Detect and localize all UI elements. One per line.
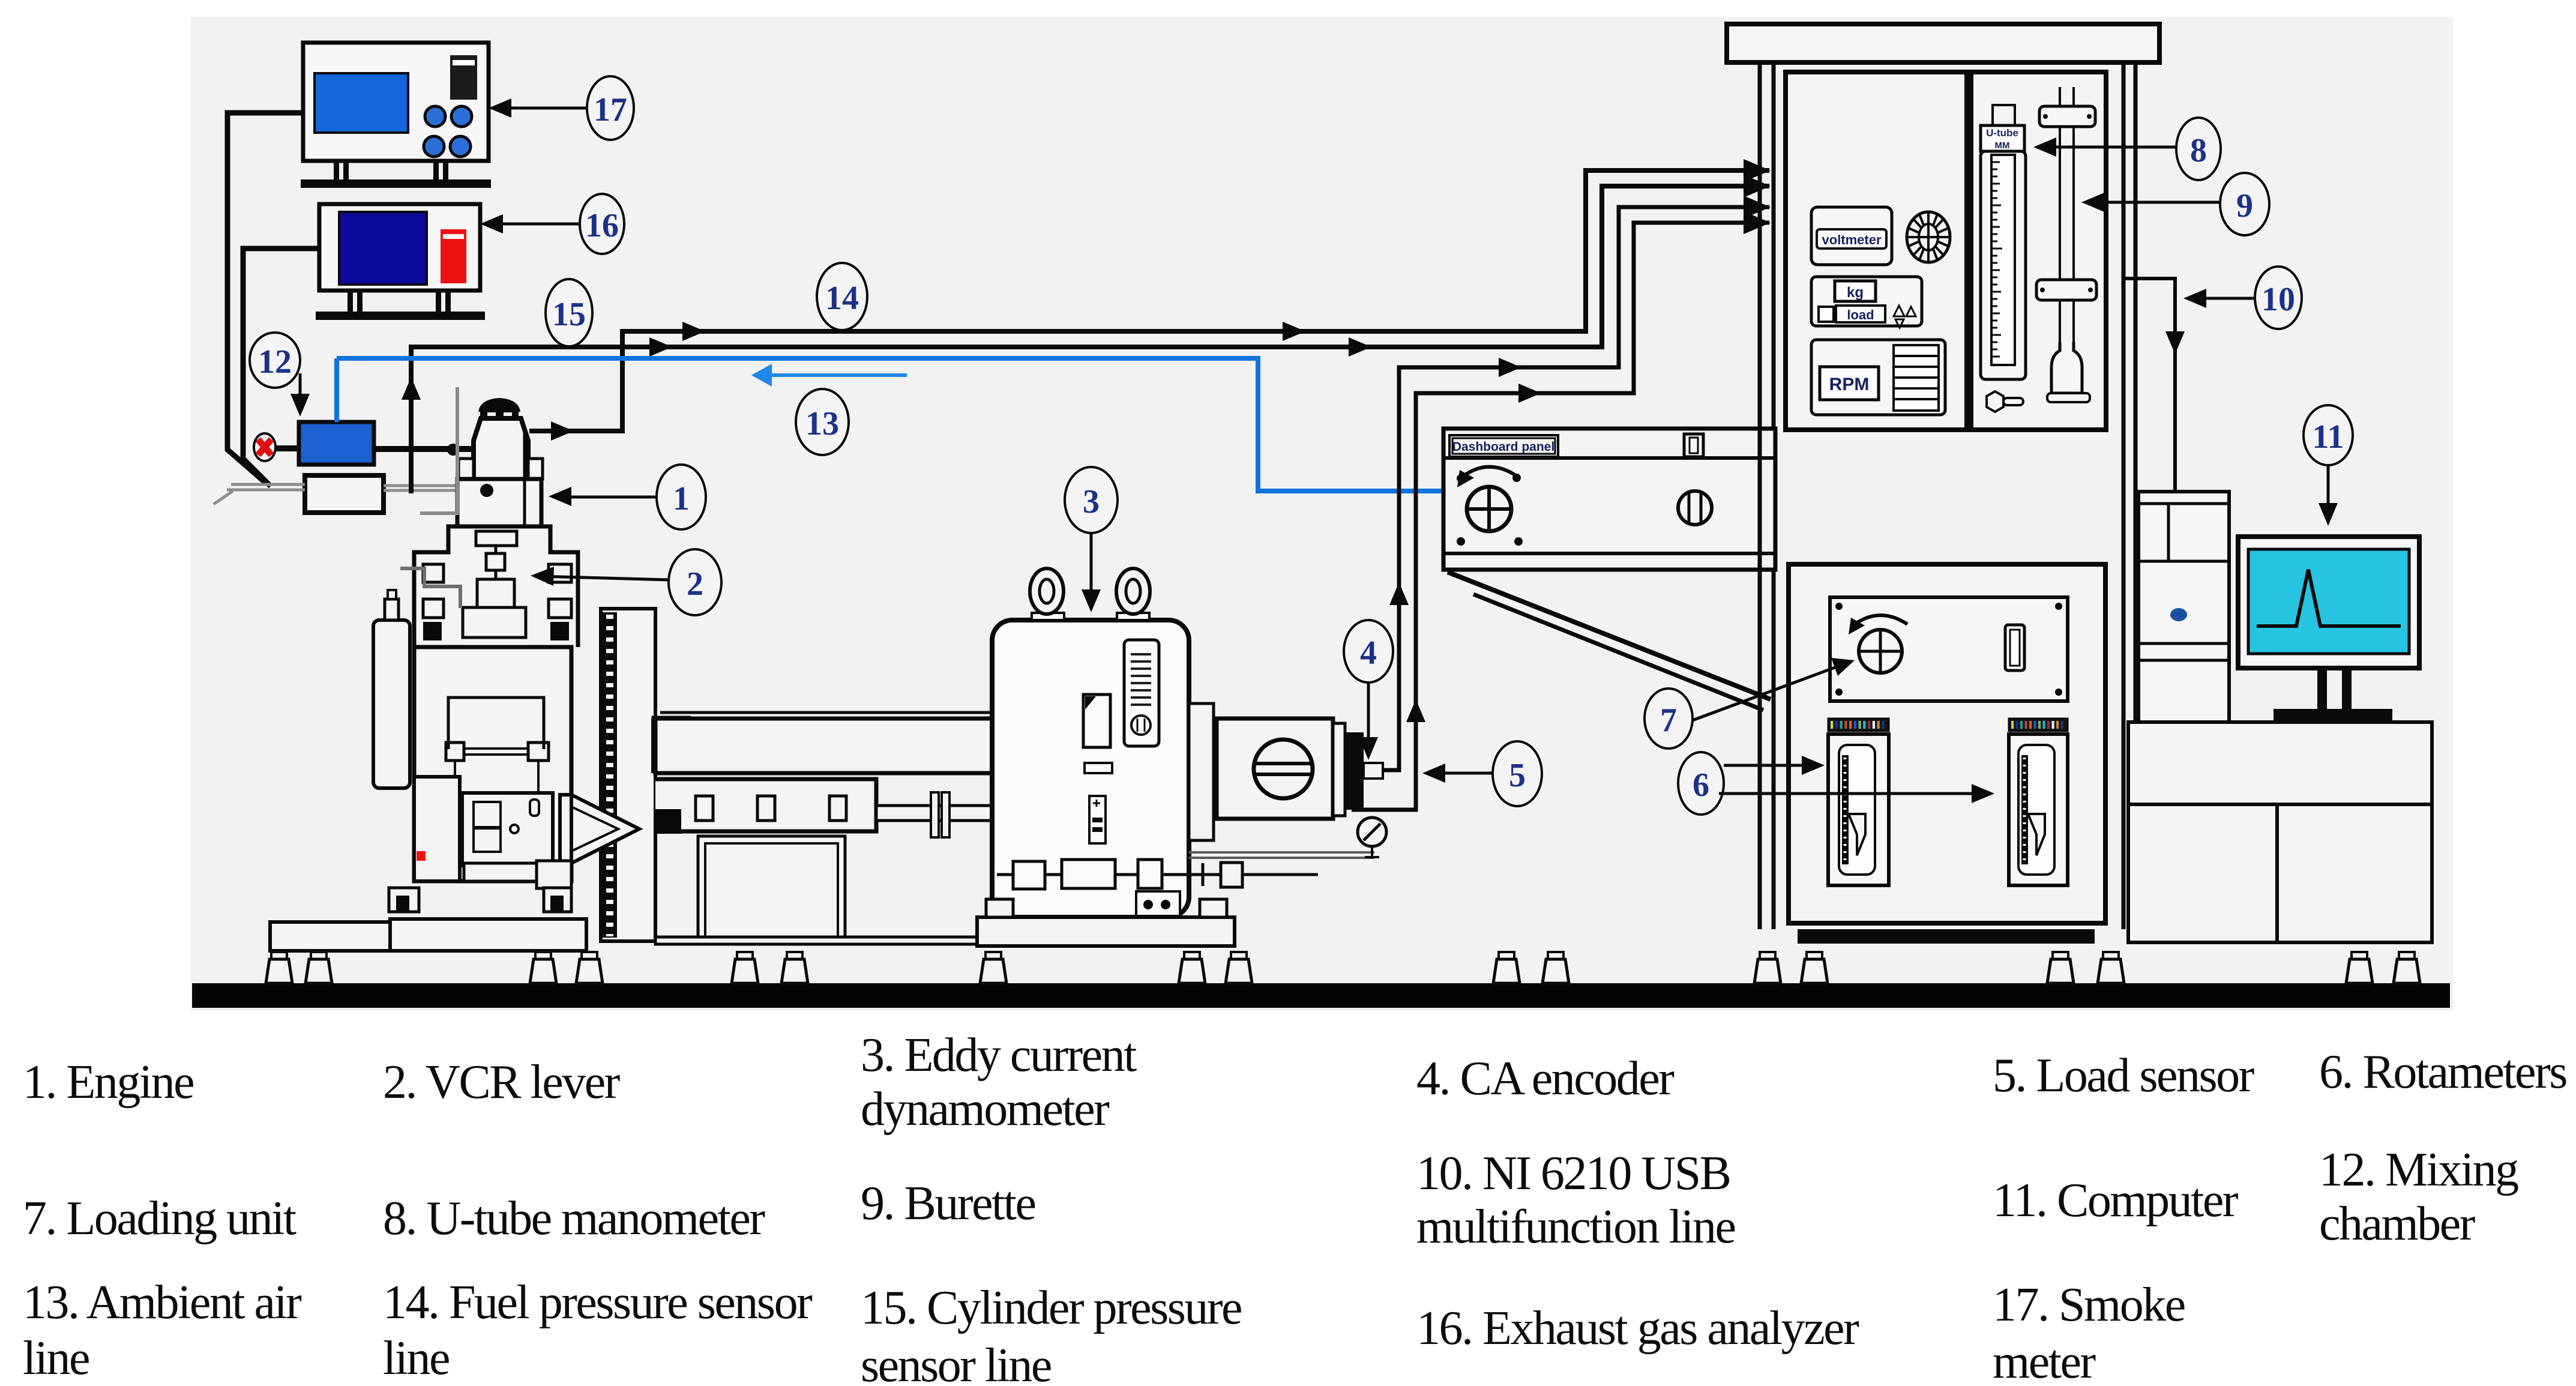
svg-text:11: 11	[2313, 418, 2344, 456]
svg-text:14: 14	[825, 280, 859, 317]
svg-text:8: 8	[2190, 132, 2207, 169]
svg-text:10: 10	[2262, 281, 2295, 318]
svg-text:multifunction line: multifunction line	[1416, 1201, 1735, 1253]
svg-text:11. Computer: 11. Computer	[1993, 1174, 2238, 1227]
svg-text:15. Cylinder pressure: 15. Cylinder pressure	[861, 1282, 1241, 1334]
svg-text:17: 17	[594, 91, 627, 128]
svg-text:chamber: chamber	[2319, 1198, 2475, 1250]
svg-text:2. VCR lever: 2. VCR lever	[383, 1056, 620, 1109]
svg-text:7. Loading unit: 7. Loading unit	[23, 1192, 296, 1245]
svg-text:1: 1	[673, 480, 690, 517]
svg-text:14. Fuel pressure sensor: 14. Fuel pressure sensor	[383, 1276, 812, 1329]
svg-text:MM: MM	[1995, 140, 2010, 151]
svg-text:12. Mixing: 12. Mixing	[2319, 1143, 2518, 1196]
svg-text:4. CA encoder: 4. CA encoder	[1416, 1052, 1674, 1105]
svg-text:line: line	[23, 1332, 89, 1385]
svg-text:10. NI 6210 USB: 10. NI 6210 USB	[1416, 1147, 1730, 1200]
svg-text:kg: kg	[1847, 285, 1864, 301]
svg-text:12: 12	[258, 343, 292, 381]
svg-text:13: 13	[805, 405, 839, 442]
svg-text:RPM: RPM	[1829, 375, 1870, 394]
svg-text:16. Exhaust gas analyzer: 16. Exhaust gas analyzer	[1416, 1302, 1859, 1355]
svg-text:3: 3	[1083, 483, 1100, 520]
svg-text:load: load	[1847, 307, 1874, 322]
svg-text:8. U-tube manometer: 8. U-tube manometer	[383, 1192, 765, 1245]
svg-text:voltmeter: voltmeter	[1822, 232, 1881, 247]
svg-text:5: 5	[1509, 757, 1526, 794]
svg-text:U-tube: U-tube	[1986, 127, 2018, 139]
svg-text:line: line	[383, 1332, 449, 1385]
svg-text:Dashboard panel: Dashboard panel	[1452, 440, 1554, 454]
svg-text:6. Rotameters: 6. Rotameters	[2319, 1046, 2566, 1098]
svg-text:17. Smoke: 17. Smoke	[1993, 1279, 2185, 1331]
svg-text:5. Load sensor: 5. Load sensor	[1993, 1049, 2254, 1102]
svg-text:7: 7	[1660, 702, 1677, 739]
svg-text:dynamometer: dynamometer	[861, 1083, 1109, 1136]
svg-text:6: 6	[1693, 767, 1709, 804]
svg-text:9. Burette: 9. Burette	[861, 1177, 1035, 1230]
svg-text:meter: meter	[1993, 1336, 2095, 1386]
svg-text:16: 16	[585, 207, 619, 244]
svg-text:4: 4	[1360, 634, 1377, 672]
svg-text:13. Ambient air: 13. Ambient air	[23, 1276, 301, 1329]
svg-text:9: 9	[2236, 187, 2253, 224]
svg-text:15: 15	[552, 296, 586, 333]
svg-text:sensor line: sensor line	[861, 1339, 1051, 1386]
svg-text:2: 2	[687, 565, 703, 603]
svg-text:1. Engine: 1. Engine	[23, 1056, 193, 1109]
svg-text:3. Eddy current: 3. Eddy current	[861, 1029, 1137, 1082]
